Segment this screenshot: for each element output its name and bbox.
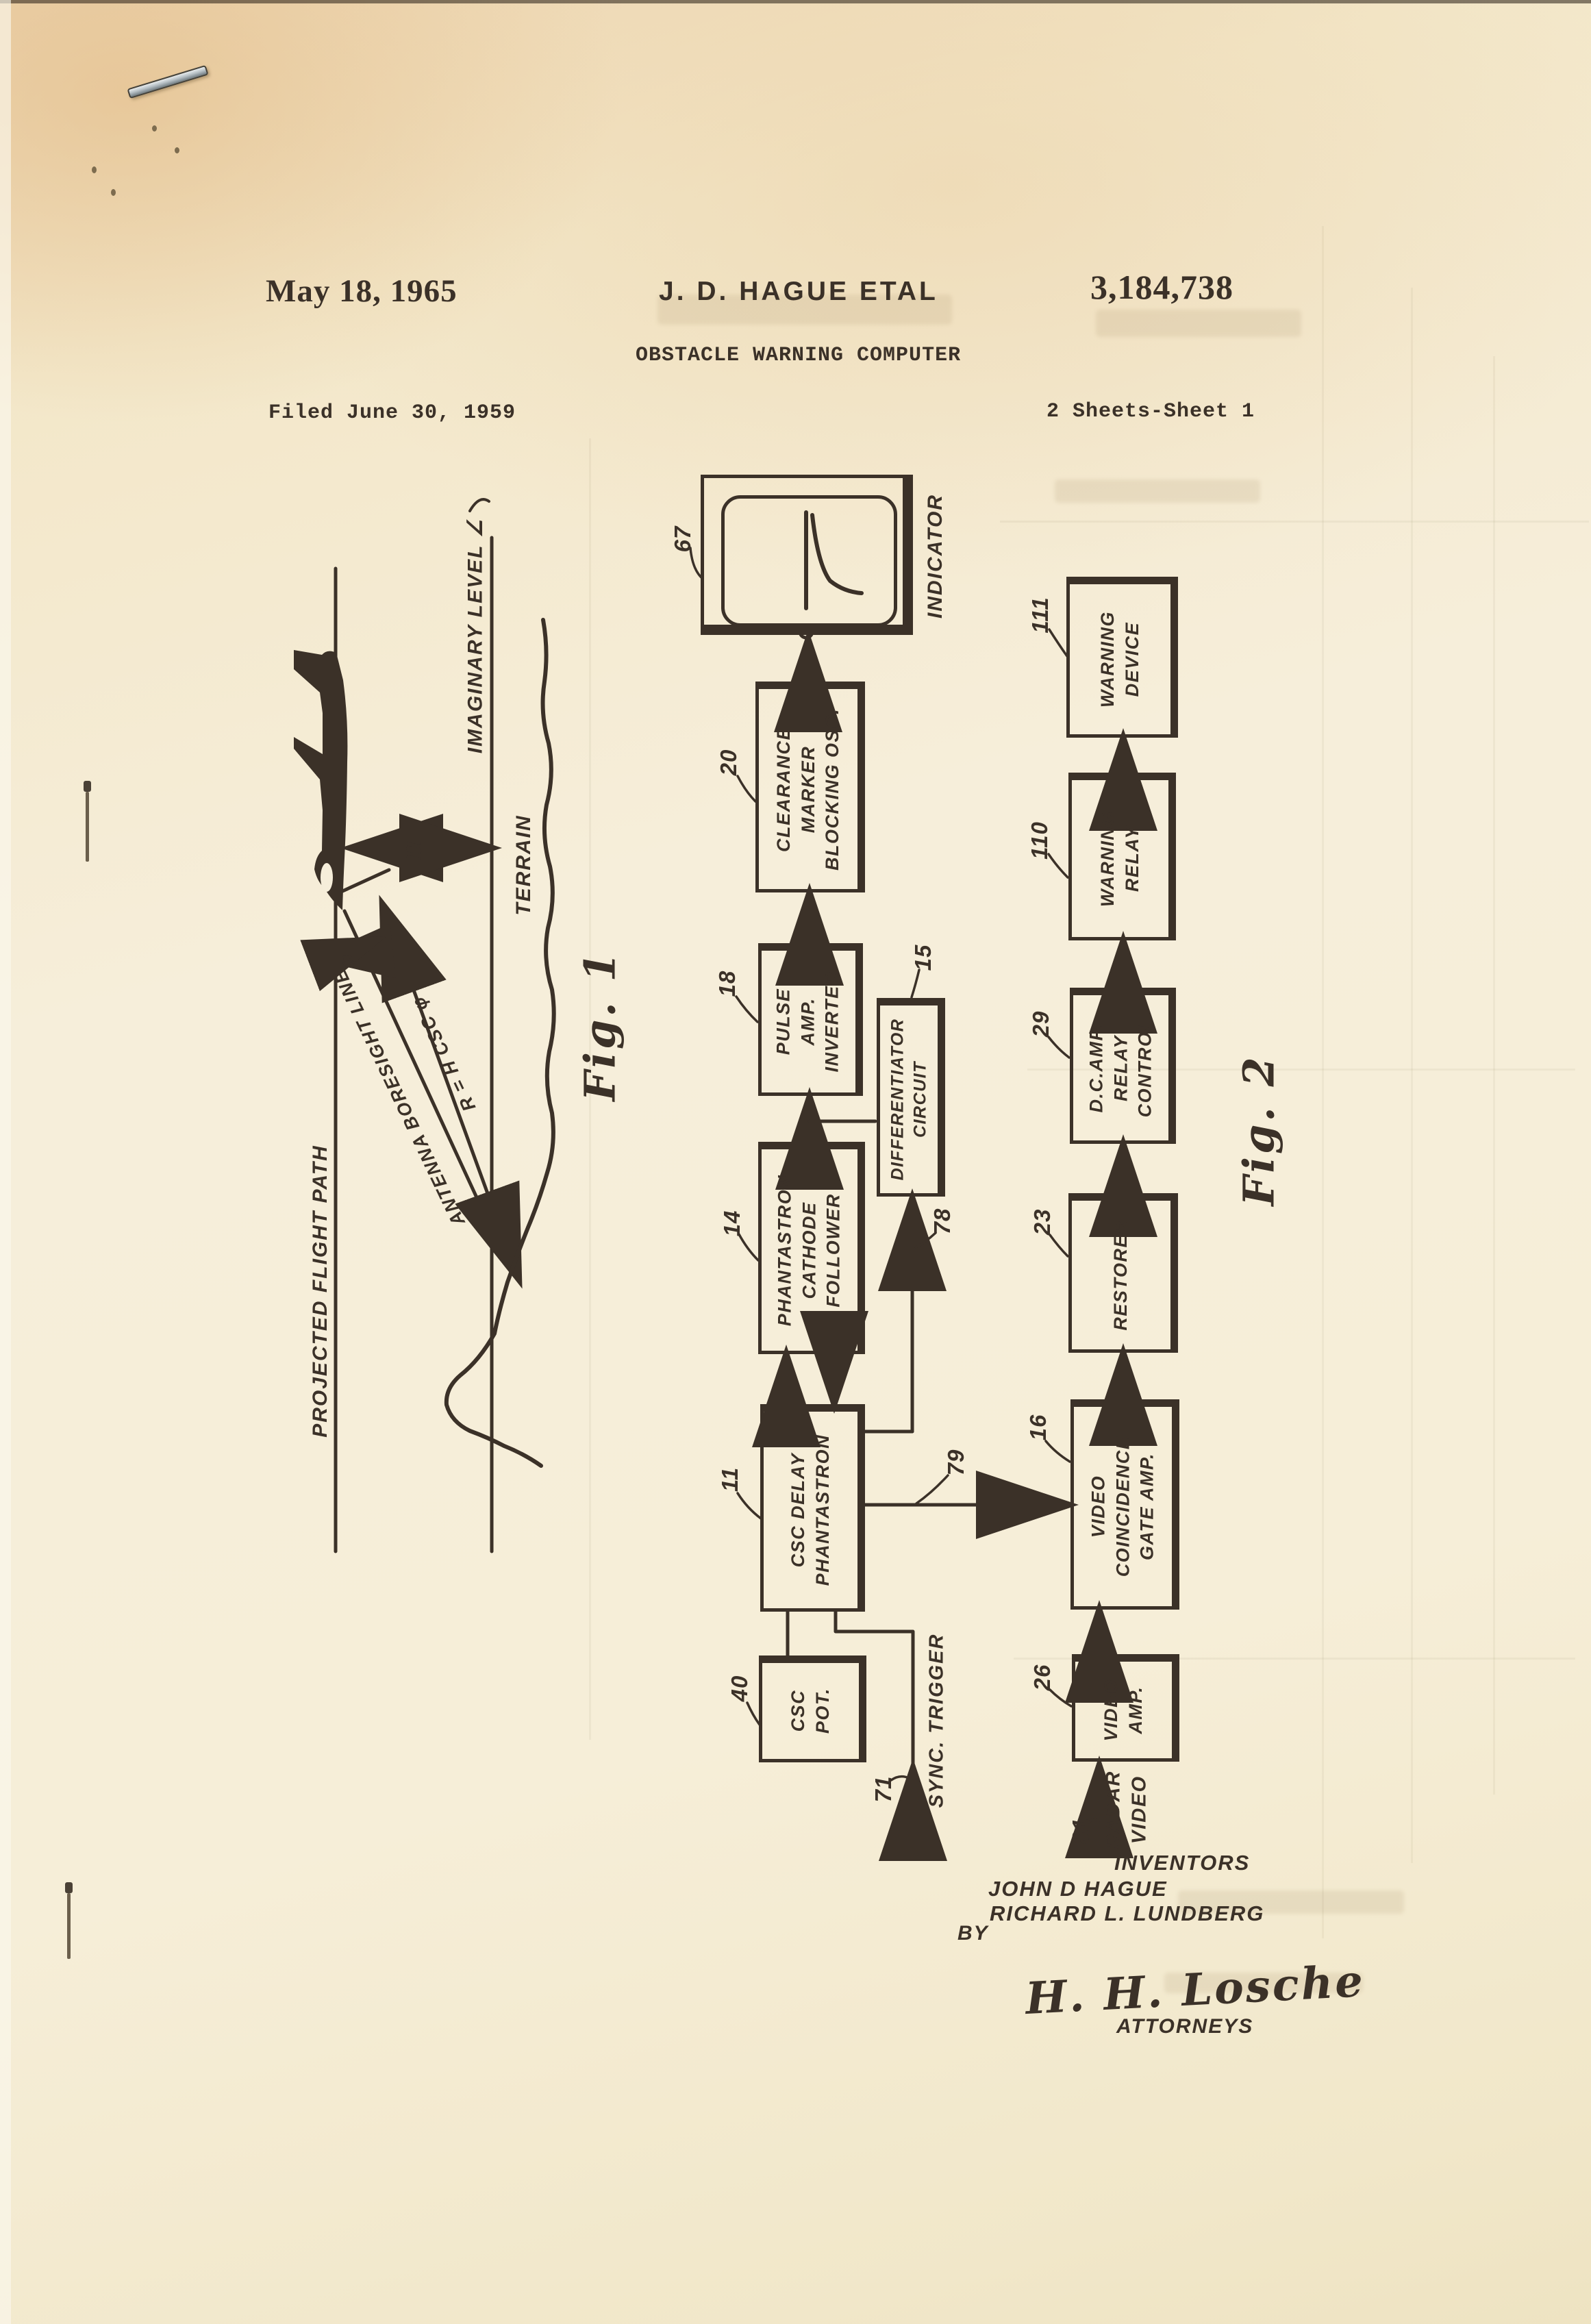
leader-18 bbox=[736, 997, 757, 1022]
block-label: WARNING DEVICE bbox=[1096, 611, 1144, 708]
ref-15: 15 bbox=[910, 945, 936, 971]
imaginary-level-label: IMAGINARY LEVEL ∠ bbox=[464, 518, 488, 753]
indicator-label: INDICATOR bbox=[924, 494, 947, 619]
boresight-line bbox=[344, 911, 479, 1203]
block-csc-pot: CSC POT. bbox=[759, 1655, 866, 1762]
ref-81: 81 bbox=[1068, 1818, 1094, 1845]
leader-78 bbox=[916, 1233, 936, 1247]
radar-video-label: RADAR VIDEO bbox=[1101, 1771, 1152, 1849]
height-symbol: H bbox=[399, 839, 428, 860]
block-label: RESTORER bbox=[1109, 1220, 1133, 1331]
block-warning-device: WARNING DEVICE bbox=[1066, 577, 1178, 738]
block-phantastron-cathode-follower: PHANTASTRON CATHODE FOLLOWER bbox=[758, 1142, 865, 1354]
block-differentiator-circuit: DIFFERENTIATOR CIRCUIT bbox=[877, 998, 945, 1197]
inventor-name-2: RICHARD L. LUNDBERG bbox=[990, 1901, 1264, 1926]
sync-trigger-label: SYNC. TRIGGER bbox=[926, 1634, 949, 1808]
leader-16 bbox=[1046, 1441, 1070, 1462]
flight-path-label: PROJECTED FLIGHT PATH bbox=[309, 1145, 332, 1438]
block-label: CLEARANCE MARKER BLOCKING OSC. bbox=[772, 708, 845, 870]
block-pulse-amp-inverter: PULSE AMP. INVERTER bbox=[758, 943, 863, 1096]
fig1-label: Fig. 1 bbox=[575, 949, 625, 1101]
leader-26 bbox=[1050, 1690, 1071, 1706]
leader-79 bbox=[916, 1475, 948, 1503]
leader-29 bbox=[1049, 1037, 1069, 1058]
attorneys-label: ATTORNEYS bbox=[1116, 2015, 1253, 2038]
ref-11: 11 bbox=[717, 1467, 743, 1492]
terrain-label: TERRAIN bbox=[512, 814, 536, 915]
leader-15 bbox=[912, 970, 919, 997]
block-label: PULSE AMP. INVERTER bbox=[772, 971, 845, 1072]
block-video-coincidence-gate-amp: VIDEO COINCIDENCE GATE AMP. bbox=[1070, 1399, 1179, 1610]
imaginary-level-leader bbox=[470, 499, 489, 511]
block-label: VIDEO COINCIDENCE GATE AMP. bbox=[1086, 1436, 1160, 1577]
ref-16: 16 bbox=[1025, 1414, 1051, 1441]
block-label: VIDEO AMP. bbox=[1099, 1679, 1148, 1742]
block-csc-delay-phantastron: CSC DELAY PHANTASTRON bbox=[760, 1404, 865, 1612]
block-warning-relay: WARNING RELAY bbox=[1068, 773, 1176, 940]
ref-111: 111 bbox=[1027, 597, 1053, 633]
ref-78: 78 bbox=[929, 1208, 955, 1235]
by-label: BY bbox=[957, 1922, 989, 1945]
block-dc-amp-relay-control: D.C.AMP. RELAY CONTROL bbox=[1070, 988, 1176, 1144]
block-label: DIFFERENTIATOR CIRCUIT bbox=[886, 1019, 931, 1181]
leader-20 bbox=[738, 776, 755, 801]
leader-23 bbox=[1050, 1235, 1068, 1256]
aircraft-canopy bbox=[321, 863, 333, 892]
ref-79: 79 bbox=[943, 1449, 969, 1476]
block-label: CSC POT. bbox=[786, 1688, 835, 1734]
leader-40 bbox=[747, 1703, 760, 1725]
block-label: PHANTASTRON CATHODE FOLLOWER bbox=[773, 1174, 847, 1326]
ref-18: 18 bbox=[714, 971, 740, 997]
block-label: D.C.AMP. RELAY CONTROL bbox=[1084, 1019, 1157, 1117]
inventor-name-1: JOHN D HAGUE bbox=[988, 1877, 1168, 1901]
ref-23: 23 bbox=[1029, 1209, 1055, 1236]
block-label: CSC DELAY PHANTASTRON bbox=[786, 1434, 835, 1586]
indicator-screen bbox=[721, 495, 897, 627]
terrain-line bbox=[447, 620, 554, 1466]
ref-71: 71 bbox=[870, 1776, 897, 1803]
range-arrow-down bbox=[451, 1092, 516, 1273]
patent-sheet: May 18, 1965 J. D. HAGUE ETAL 3,184,738 … bbox=[0, 0, 1591, 2324]
block-clearance-marker-blocking-osc: CLEARANCE MARKER BLOCKING OSC. bbox=[755, 682, 865, 892]
inventors-heading: INVENTORS bbox=[1114, 1851, 1250, 1875]
ref-110: 110 bbox=[1027, 821, 1053, 860]
block-video-amp: VIDEO AMP. bbox=[1072, 1654, 1179, 1762]
ref-29: 29 bbox=[1028, 1011, 1054, 1038]
fig2-label: Fig. 2 bbox=[1234, 1054, 1284, 1205]
ref-20: 20 bbox=[716, 749, 742, 776]
leader-14 bbox=[739, 1234, 758, 1260]
leader-111 bbox=[1049, 629, 1067, 656]
ref-40: 40 bbox=[727, 1675, 753, 1702]
nose-tick bbox=[341, 870, 389, 892]
aircraft-silhouette bbox=[294, 650, 347, 910]
ref-67: 67 bbox=[670, 526, 696, 553]
block-label: WARNING RELAY bbox=[1096, 810, 1144, 907]
block-restorer: RESTORER bbox=[1068, 1193, 1178, 1353]
leader-11 bbox=[738, 1493, 761, 1519]
ref-14: 14 bbox=[719, 1210, 745, 1237]
ref-26: 26 bbox=[1029, 1664, 1055, 1691]
